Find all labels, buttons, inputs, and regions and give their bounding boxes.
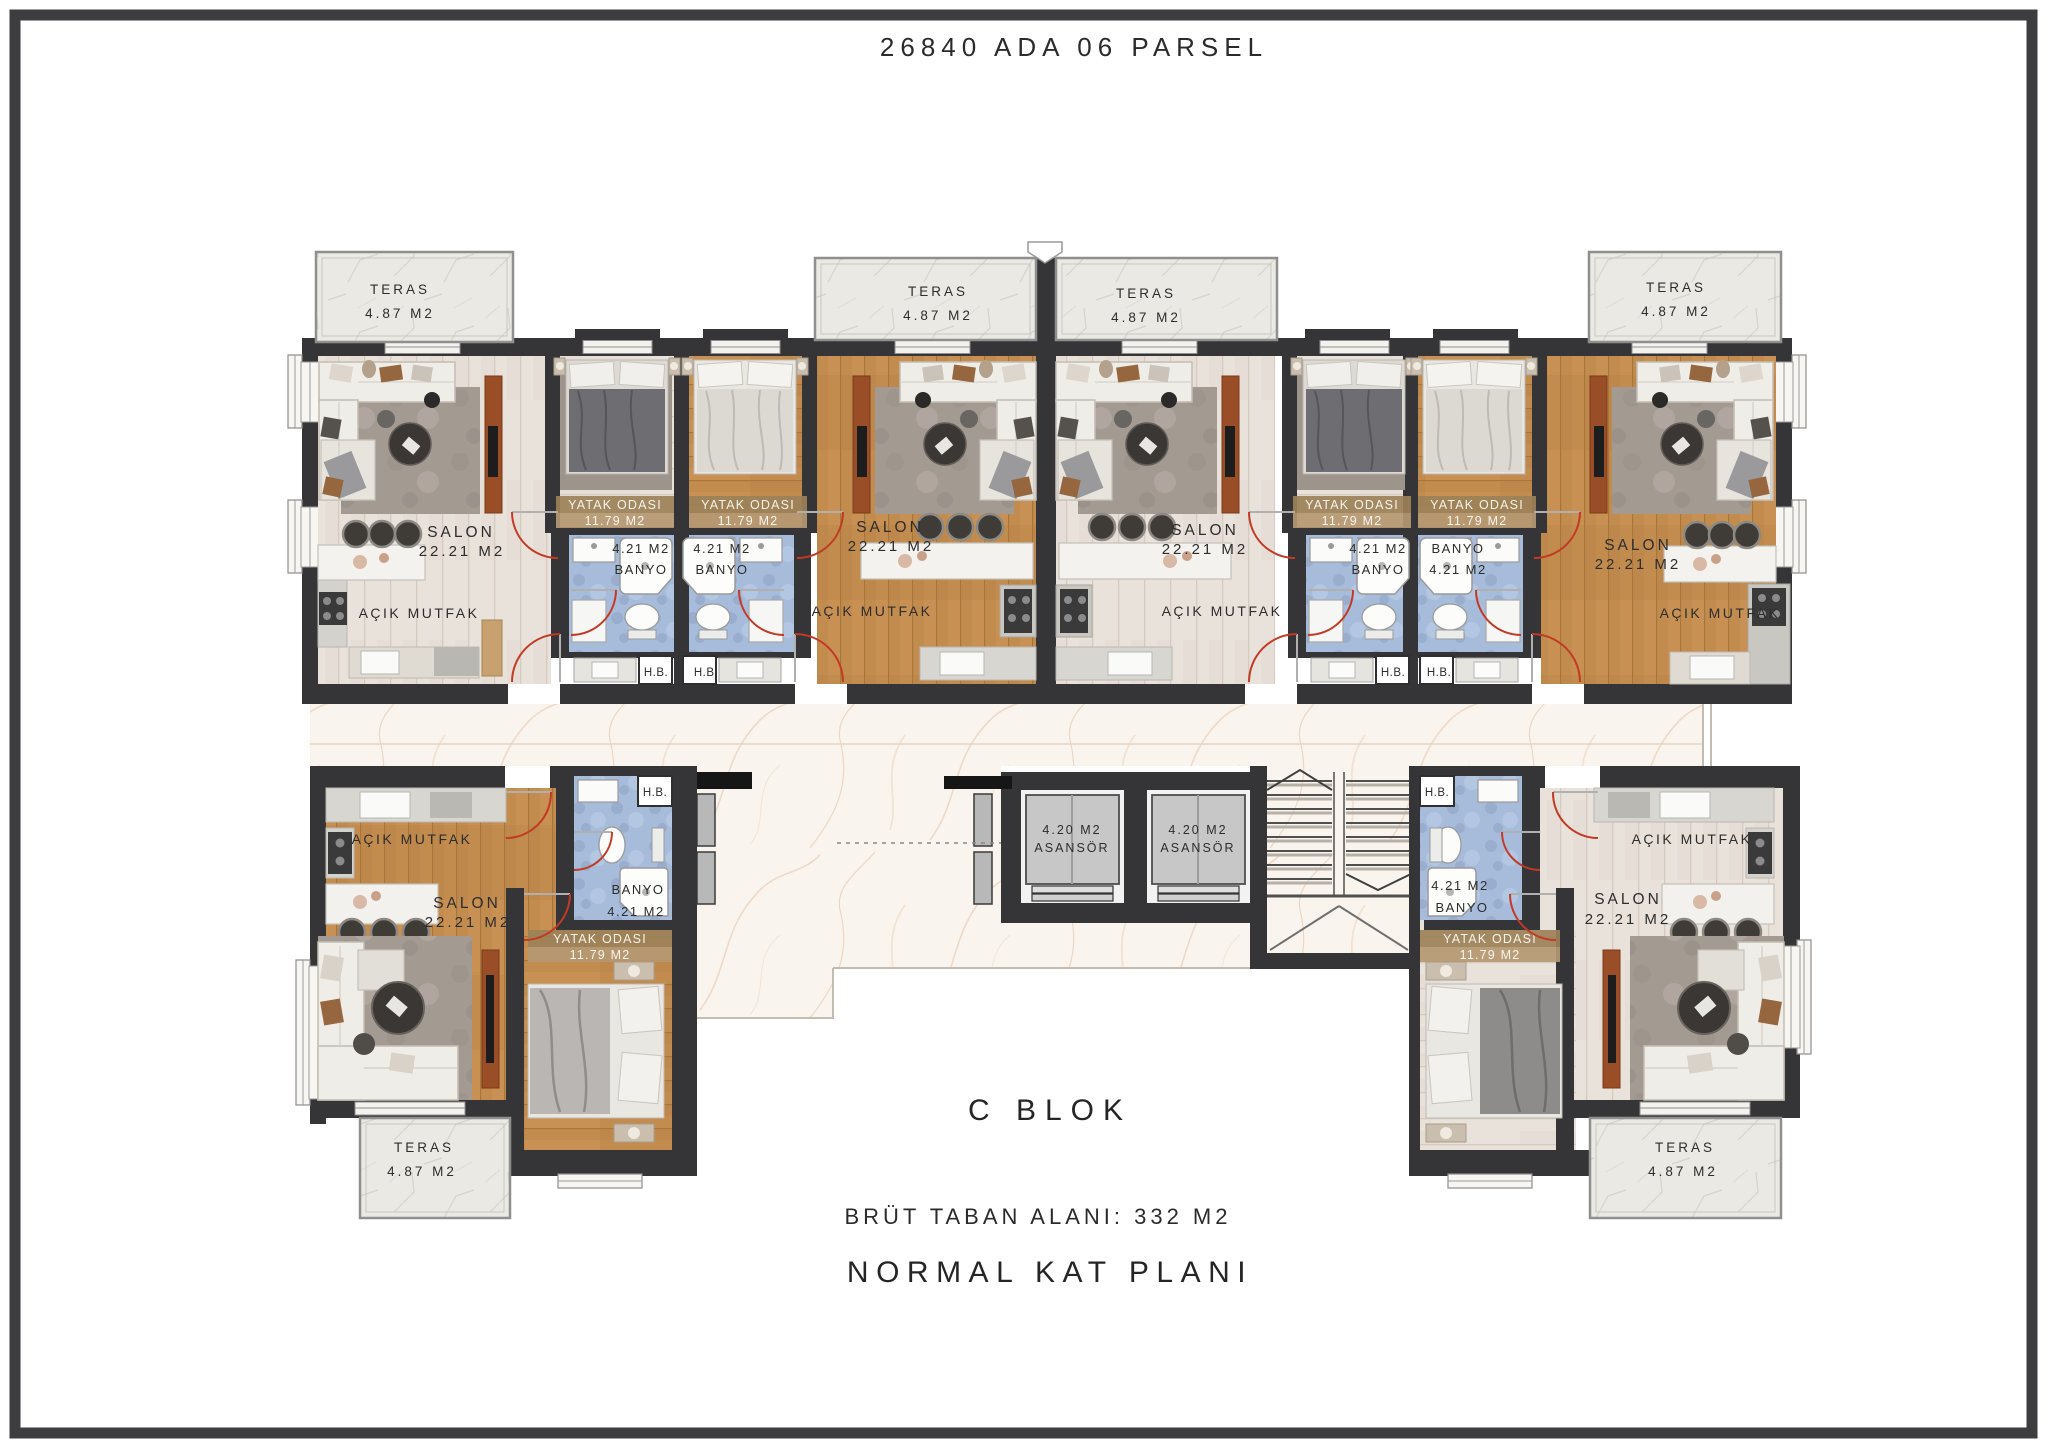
svg-text:22.21 M2: 22.21 M2 xyxy=(1162,541,1249,558)
svg-text:4.21 M2: 4.21 M2 xyxy=(1349,541,1406,556)
svg-text:11.79 M2: 11.79 M2 xyxy=(1322,514,1383,528)
svg-text:BANYO: BANYO xyxy=(1435,900,1488,915)
svg-text:4.87 M2: 4.87 M2 xyxy=(1111,310,1181,325)
svg-text:BRÜT TABAN ALANI: 332 M2: BRÜT TABAN ALANI: 332 M2 xyxy=(844,1204,1231,1229)
svg-text:11.79 M2: 11.79 M2 xyxy=(570,948,631,962)
svg-text:H.B.: H.B. xyxy=(1425,787,1449,799)
svg-text:YATAK ODASI: YATAK ODASI xyxy=(1443,932,1537,946)
svg-text:SALON: SALON xyxy=(1594,891,1662,908)
svg-text:YATAK ODASI: YATAK ODASI xyxy=(568,498,662,512)
svg-text:SALON: SALON xyxy=(856,519,924,536)
svg-text:4.21 M2: 4.21 M2 xyxy=(693,541,750,556)
svg-text:YATAK ODASI: YATAK ODASI xyxy=(1305,498,1399,512)
svg-text:BANYO: BANYO xyxy=(611,882,664,897)
svg-text:SALON: SALON xyxy=(1171,522,1239,539)
svg-text:TERAS: TERAS xyxy=(1655,1140,1715,1155)
svg-text:22.21 M2: 22.21 M2 xyxy=(1585,911,1672,928)
svg-text:ASANSÖR: ASANSÖR xyxy=(1160,841,1235,855)
svg-text:H.B.: H.B. xyxy=(1381,667,1405,679)
svg-text:YATAK ODASI: YATAK ODASI xyxy=(553,932,647,946)
svg-text:SALON: SALON xyxy=(427,524,495,541)
svg-text:H.B.: H.B. xyxy=(643,787,667,799)
svg-text:AÇIK MUTFAK: AÇIK MUTFAK xyxy=(1632,831,1753,847)
svg-text:4.20 M2: 4.20 M2 xyxy=(1042,823,1101,837)
svg-text:TERAS: TERAS xyxy=(370,282,430,297)
svg-text:YATAK ODASI: YATAK ODASI xyxy=(701,498,795,512)
svg-text:BANYO: BANYO xyxy=(1351,562,1404,577)
svg-text:11.79 M2: 11.79 M2 xyxy=(585,514,646,528)
svg-text:H.B.: H.B. xyxy=(644,667,668,679)
svg-text:4.21 M2: 4.21 M2 xyxy=(612,541,669,556)
svg-text:NORMAL KAT PLANI: NORMAL KAT PLANI xyxy=(847,1256,1253,1289)
svg-text:4.20 M2: 4.20 M2 xyxy=(1168,823,1227,837)
svg-text:22.21 M2: 22.21 M2 xyxy=(848,538,935,555)
svg-text:YATAK ODASI: YATAK ODASI xyxy=(1430,498,1524,512)
svg-text:TERAS: TERAS xyxy=(908,284,968,299)
svg-text:TERAS: TERAS xyxy=(394,1140,454,1155)
svg-text:4.21 M2: 4.21 M2 xyxy=(1429,562,1486,577)
svg-text:BANYO: BANYO xyxy=(695,562,748,577)
svg-text:AÇIK MUTFAK: AÇIK MUTFAK xyxy=(359,605,480,621)
svg-text:11.79 M2: 11.79 M2 xyxy=(1447,514,1508,528)
svg-text:11.79 M2: 11.79 M2 xyxy=(1460,948,1521,962)
svg-text:BANYO: BANYO xyxy=(614,562,667,577)
svg-text:AÇIK MUTFAK: AÇIK MUTFAK xyxy=(1660,605,1781,621)
svg-text:4.21 M2: 4.21 M2 xyxy=(1431,878,1488,893)
svg-text:22.21 M2: 22.21 M2 xyxy=(419,543,506,560)
svg-text:4.87 M2: 4.87 M2 xyxy=(387,1164,457,1179)
svg-text:TERAS: TERAS xyxy=(1646,280,1706,295)
svg-text:AÇIK MUTFAK: AÇIK MUTFAK xyxy=(1162,603,1283,619)
svg-text:H.B.: H.B. xyxy=(1427,667,1451,679)
svg-text:22.21 M2: 22.21 M2 xyxy=(1595,556,1682,573)
svg-text:22.21 M2: 22.21 M2 xyxy=(425,914,512,931)
svg-text:4.87 M2: 4.87 M2 xyxy=(1641,304,1711,319)
svg-text:4.87 M2: 4.87 M2 xyxy=(365,306,435,321)
svg-text:SALON: SALON xyxy=(1604,537,1672,554)
svg-text:C BLOK: C BLOK xyxy=(968,1094,1132,1127)
svg-text:AÇIK MUTFAK: AÇIK MUTFAK xyxy=(352,831,473,847)
svg-text:H.B.: H.B. xyxy=(694,667,718,679)
svg-text:4.87 M2: 4.87 M2 xyxy=(903,308,973,323)
svg-text:4.87 M2: 4.87 M2 xyxy=(1648,1164,1718,1179)
svg-text:TERAS: TERAS xyxy=(1116,286,1176,301)
svg-text:BANYO: BANYO xyxy=(1431,541,1484,556)
svg-text:4.21 M2: 4.21 M2 xyxy=(607,904,664,919)
svg-text:SALON: SALON xyxy=(433,895,501,912)
svg-text:11.79 M2: 11.79 M2 xyxy=(718,514,779,528)
svg-text:26840 ADA 06 PARSEL: 26840 ADA 06 PARSEL xyxy=(880,32,1268,62)
svg-text:AÇIK MUTFAK: AÇIK MUTFAK xyxy=(812,603,933,619)
svg-text:ASANSÖR: ASANSÖR xyxy=(1034,841,1109,855)
